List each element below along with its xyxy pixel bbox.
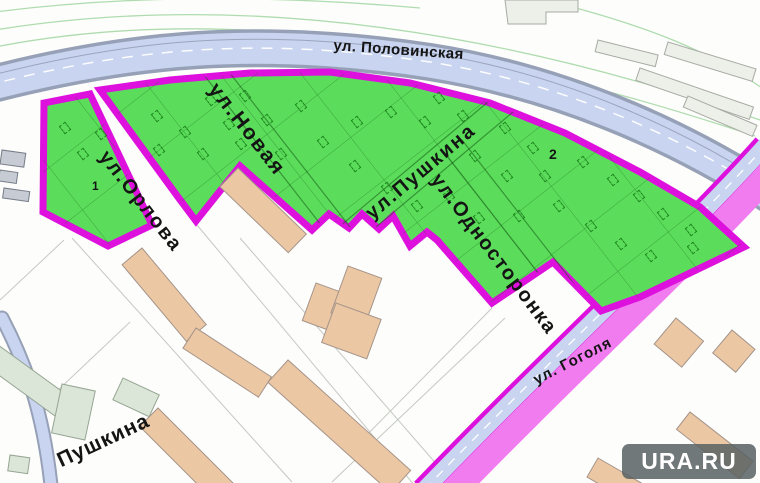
ura-logo-text: URA.RU xyxy=(641,448,736,475)
ura-logo: URA.RU xyxy=(622,444,756,479)
zone-number-2: 2 xyxy=(549,147,557,161)
map-canvas: ул. Половинская ул.Новая ул.Пушкина ул.О… xyxy=(0,0,760,483)
zone-number-1: 1 xyxy=(92,180,99,192)
map-drawing xyxy=(0,0,760,483)
